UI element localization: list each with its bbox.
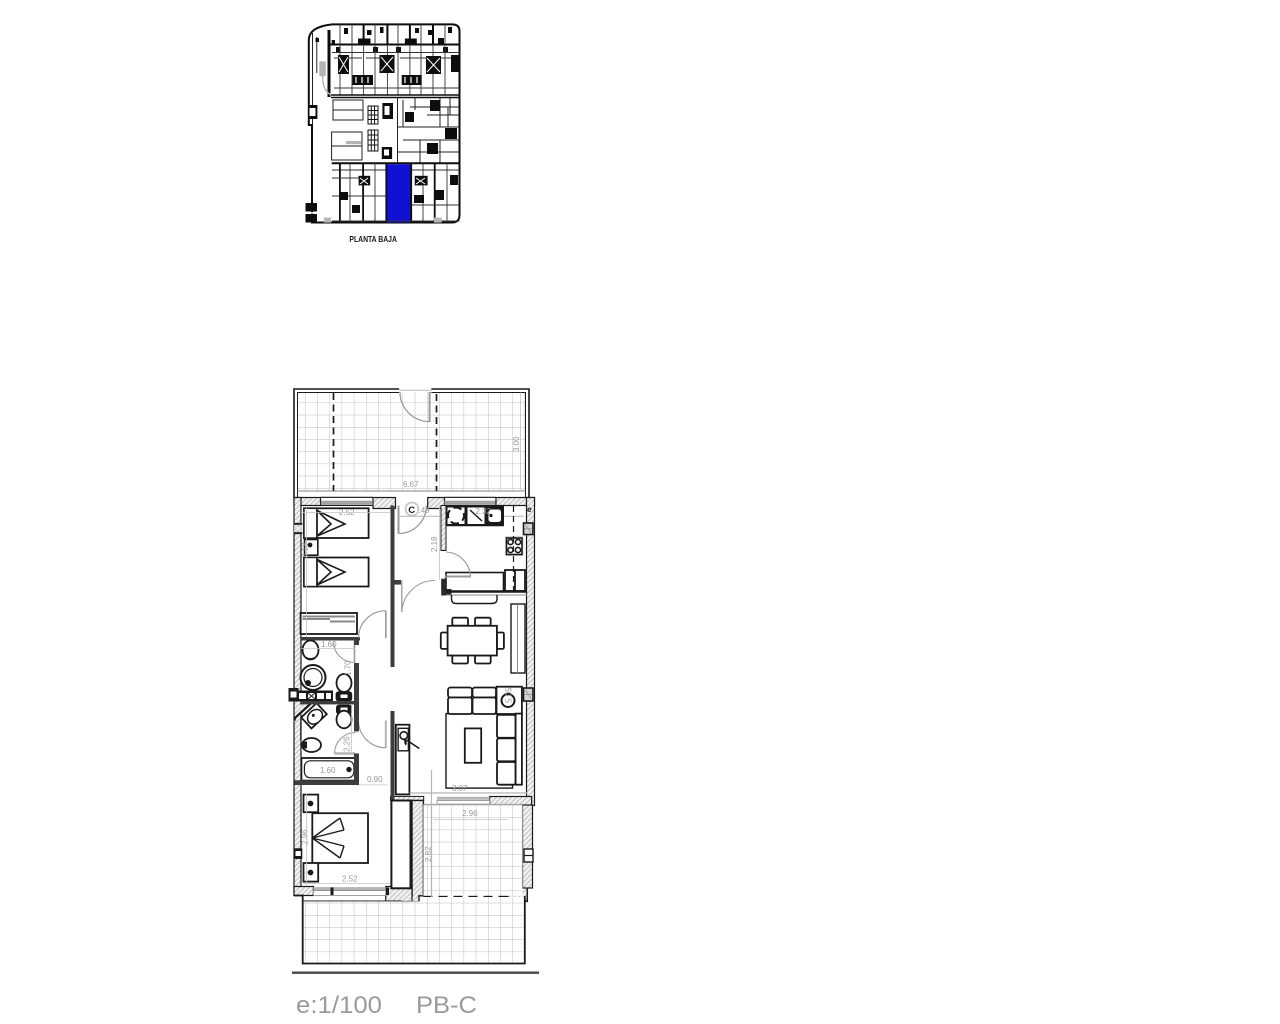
svg-text:C: C bbox=[408, 505, 415, 516]
svg-text:1.60: 1.60 bbox=[320, 766, 336, 775]
svg-text:0.90: 0.90 bbox=[367, 775, 383, 784]
svg-text:2.96: 2.96 bbox=[462, 809, 478, 818]
svg-text:.49: .49 bbox=[419, 506, 431, 515]
svg-text:2.18: 2.18 bbox=[430, 536, 439, 552]
svg-text:1.60: 1.60 bbox=[321, 640, 337, 649]
svg-text:2.52: 2.52 bbox=[342, 875, 358, 884]
svg-text:2.32: 2.32 bbox=[476, 507, 492, 516]
svg-text:1.70: 1.70 bbox=[344, 660, 353, 676]
svg-text:3.18: 3.18 bbox=[301, 542, 310, 558]
svg-text:e: e bbox=[527, 504, 532, 514]
svg-text:PB-C: PB-C bbox=[416, 992, 477, 1019]
svg-text:2.26: 2.26 bbox=[343, 736, 352, 752]
svg-text:3.07: 3.07 bbox=[452, 784, 468, 793]
svg-text:e:1/100: e:1/100 bbox=[296, 992, 382, 1019]
svg-text:6.67: 6.67 bbox=[403, 480, 419, 489]
svg-text:PLANTA BAJA: PLANTA BAJA bbox=[349, 234, 397, 244]
svg-text:2.96: 2.96 bbox=[301, 829, 310, 845]
svg-text:5.05: 5.05 bbox=[505, 687, 514, 703]
svg-text:3.00: 3.00 bbox=[512, 436, 521, 452]
